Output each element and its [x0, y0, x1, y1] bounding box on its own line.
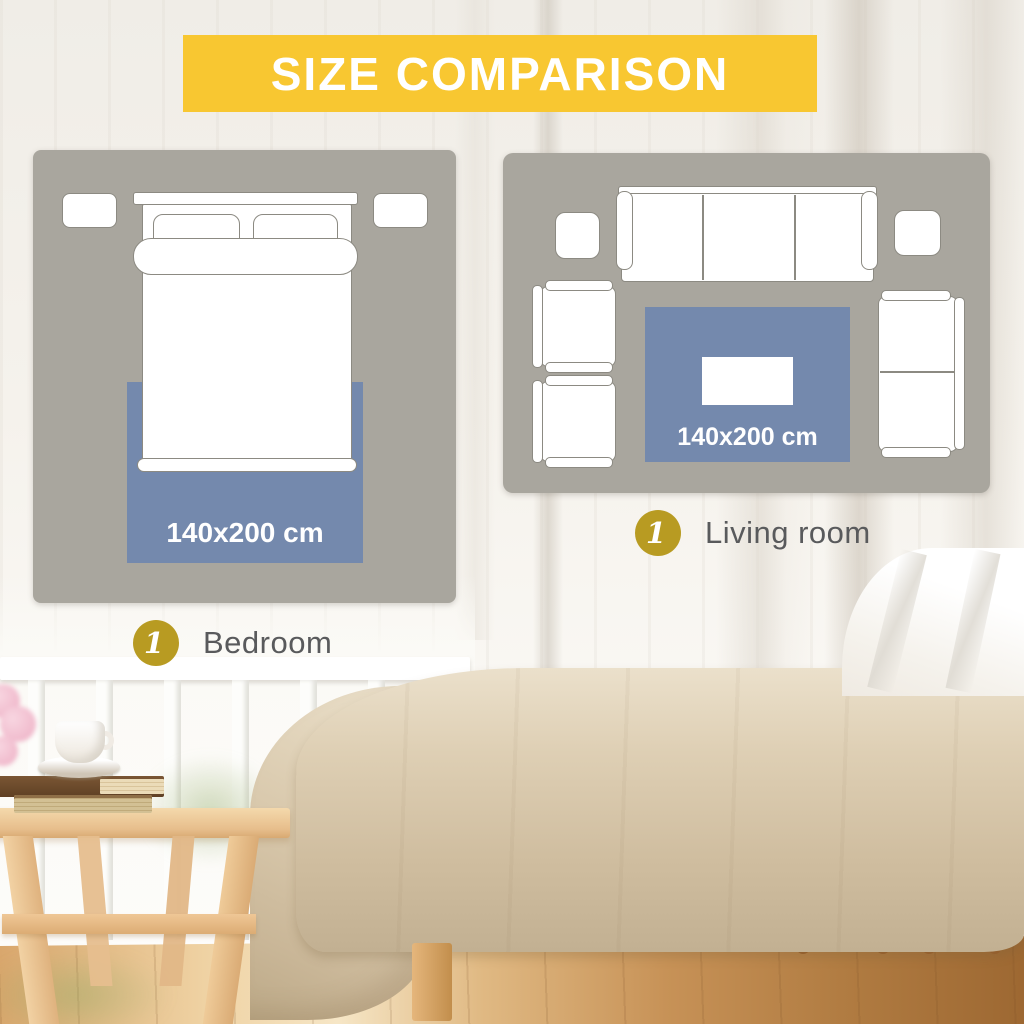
sofa-seat-divider — [794, 195, 796, 280]
side-table-icon — [894, 210, 941, 256]
loveseat-seat — [878, 296, 958, 452]
bed-leg — [412, 943, 452, 1021]
rug-size-label: 140x200 cm — [166, 517, 323, 549]
bed-footboard — [137, 458, 357, 472]
banner-title: SIZE COMPARISON — [271, 47, 730, 101]
number-badge: 1 — [133, 620, 179, 666]
loveseat-armrest — [881, 447, 951, 458]
living-room-caption: 1 Living room — [635, 510, 871, 556]
size-comparison-banner: SIZE COMPARISON — [183, 35, 817, 112]
loveseat-back — [954, 297, 965, 450]
loveseat-top-view — [875, 290, 965, 458]
rug-living-room: 140x200 cm — [645, 307, 850, 462]
sofa-armrest — [616, 191, 633, 270]
table-stretcher — [2, 914, 256, 934]
loveseat-armrest — [881, 290, 951, 301]
room-label: Bedroom — [203, 625, 332, 661]
sofa-armrest — [861, 191, 878, 270]
room-label: Living room — [705, 515, 871, 551]
bedroom-caption: 1 Bedroom — [133, 620, 332, 666]
nightstand-left — [62, 193, 117, 228]
armchair-armrest — [545, 375, 613, 386]
loveseat-seat-divider — [880, 371, 957, 373]
number-badge: 1 — [635, 510, 681, 556]
badge-number: 1 — [646, 519, 670, 548]
armchair-armrest — [545, 280, 613, 291]
bedroom-diagram-panel: 140x200 cm — [33, 150, 456, 603]
side-table-icon — [555, 212, 600, 259]
armchair-back — [532, 380, 543, 463]
armchair-seat — [540, 286, 616, 367]
book-pages — [100, 779, 164, 794]
teacup — [55, 721, 105, 763]
bed-blanket-roll — [133, 238, 358, 275]
badge-number: 1 — [144, 629, 168, 658]
armchair-top-view — [532, 375, 624, 468]
coffee-table-icon — [702, 357, 793, 405]
bed-headboard — [133, 192, 358, 205]
armchair-armrest — [545, 457, 613, 468]
sofa-seat-divider — [702, 195, 704, 280]
rug-size-label: 140x200 cm — [677, 423, 817, 452]
sofa-top-view — [621, 193, 874, 282]
armchair-top-view — [532, 280, 624, 373]
living-room-diagram-panel: 140x200 cm — [503, 153, 990, 493]
book — [14, 795, 152, 813]
armchair-seat — [540, 381, 616, 462]
armchair-back — [532, 285, 543, 368]
armchair-armrest — [545, 362, 613, 373]
book — [0, 776, 164, 797]
size-comparison-product-image: SIZE COMPARISON 140x200 cm 1 Bedroom — [0, 0, 1024, 1024]
nightstand-right — [373, 193, 428, 228]
bed-blanket — [296, 668, 1024, 952]
